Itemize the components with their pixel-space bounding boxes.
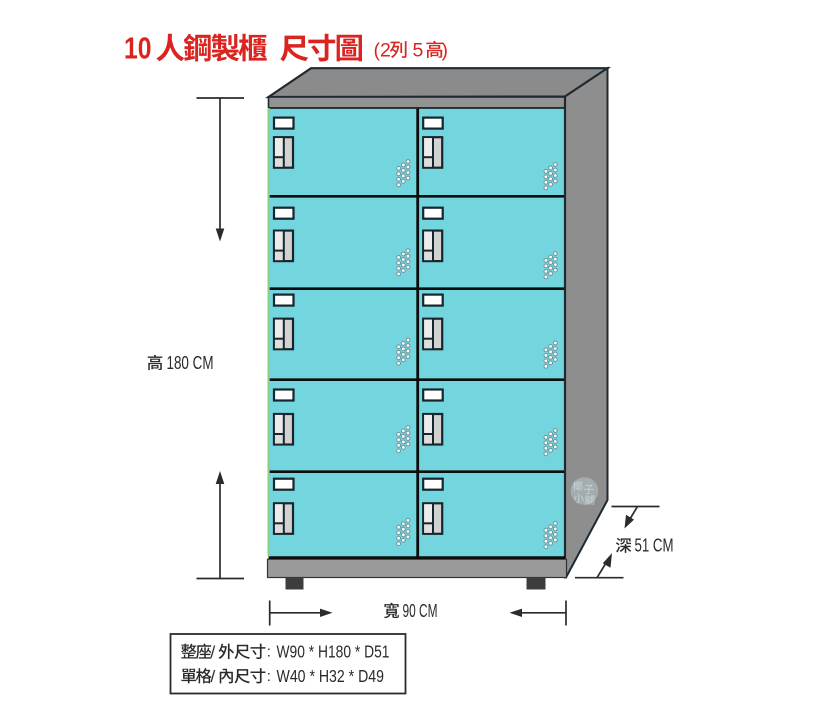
svg-text:(2: (2 — [374, 40, 391, 62]
svg-text:/: / — [211, 667, 216, 686]
svg-text:W40 * H32 * D49: W40 * H32 * D49 — [277, 666, 385, 686]
svg-text:): ) — [442, 40, 449, 62]
svg-text:90 CM: 90 CM — [403, 601, 438, 621]
svg-text:W90 * H180 * D51: W90 * H180 * D51 — [277, 642, 390, 662]
svg-text:5: 5 — [413, 40, 424, 62]
svg-text::: : — [267, 644, 271, 661]
svg-text:10: 10 — [124, 30, 152, 65]
svg-text:/: / — [211, 643, 216, 662]
svg-text:51 CM: 51 CM — [635, 536, 674, 556]
svg-text:180 CM: 180 CM — [167, 353, 214, 373]
svg-text::: : — [267, 668, 271, 685]
